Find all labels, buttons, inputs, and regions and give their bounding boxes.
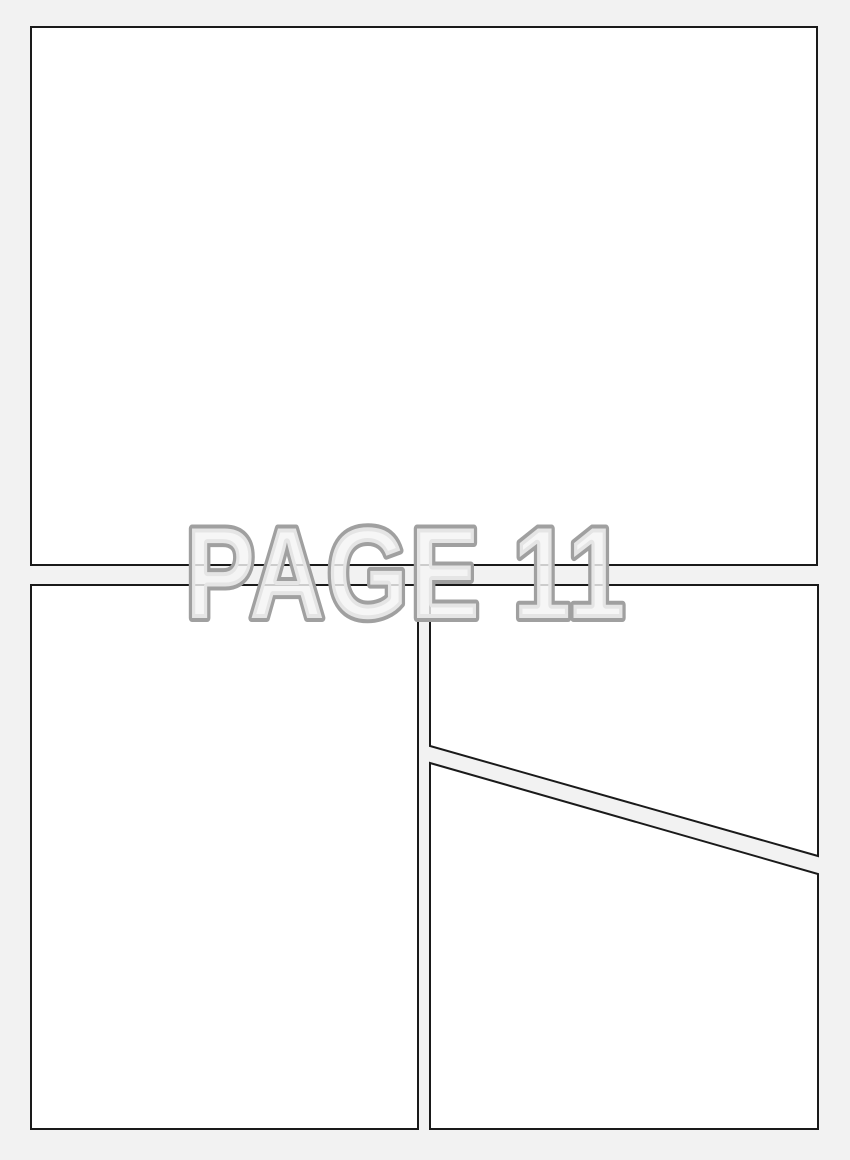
- page-title-layer: PAGE 11: [0, 0, 850, 1160]
- comic-page-template: PAGE 11: [0, 0, 850, 1160]
- page-number-label: PAGE 11: [185, 500, 627, 646]
